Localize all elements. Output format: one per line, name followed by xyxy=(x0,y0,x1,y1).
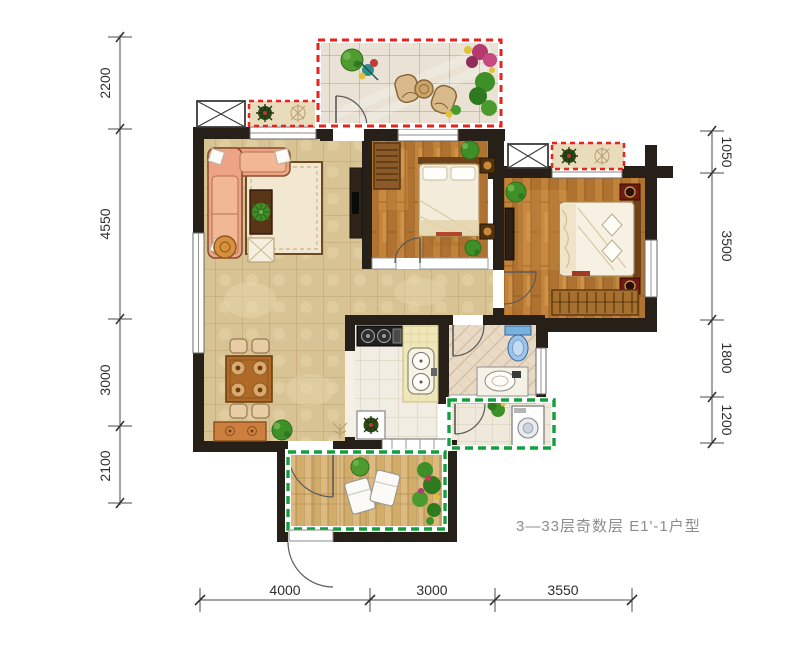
small-sink-icon xyxy=(393,329,401,343)
floor-plan-page: 2200 4550 3000 2100 1050 3500 1800 1200 … xyxy=(0,0,800,651)
tv-cabinet-master xyxy=(505,208,514,260)
wardrobe-bed1 xyxy=(374,143,400,189)
planter-box-right xyxy=(552,143,624,169)
partition-bed1-b xyxy=(420,258,488,269)
entry-door xyxy=(288,530,333,587)
floor-plan-canvas: 2200 4550 3000 2100 1050 3500 1800 1200 … xyxy=(0,0,800,651)
dim-label-left-2: 3000 xyxy=(97,364,113,395)
wardrobe-master xyxy=(552,290,638,315)
window-bath-right xyxy=(536,348,546,394)
nightstand xyxy=(620,184,640,200)
bed1-plant-icon xyxy=(465,240,481,256)
wall-master-right xyxy=(645,145,657,332)
vanity-sink xyxy=(477,367,528,396)
dim-label-bottom-0: 4000 xyxy=(269,582,300,598)
table-plant-icon xyxy=(251,202,271,222)
bed1-plant-icon xyxy=(461,141,479,159)
flue-shaft-right xyxy=(508,144,548,168)
tile-sheen xyxy=(286,374,334,406)
plant-icon xyxy=(256,104,274,122)
pillow xyxy=(423,167,447,180)
tv-cabinet-living xyxy=(350,168,362,238)
pillow xyxy=(451,167,475,180)
side-table-round xyxy=(214,236,236,258)
dim-label-left-0: 2200 xyxy=(97,67,113,98)
balcony-bush-icon xyxy=(351,458,369,476)
wall-kitchen-left-a xyxy=(345,325,355,351)
terrace-bush-icon xyxy=(341,49,363,71)
wall-left-lower xyxy=(193,353,204,452)
dining-plant-icon xyxy=(272,420,292,440)
window-living-left xyxy=(193,233,204,353)
wall-hall-b xyxy=(483,315,545,325)
dim-label-bottom-2: 3550 xyxy=(547,582,578,598)
master-bed xyxy=(560,200,641,278)
dimension-bottom: 4000 3000 3550 xyxy=(195,582,637,612)
dim-label-right-3: 1200 xyxy=(719,404,735,435)
counter xyxy=(403,326,438,402)
stove-unit xyxy=(357,326,403,346)
tile-sheen xyxy=(394,278,446,306)
wall-terrace-a xyxy=(320,129,333,141)
dim-label-left-3: 2100 xyxy=(97,450,113,481)
washer-panel xyxy=(514,408,526,413)
bed-trim xyxy=(572,271,590,276)
unit-type-caption: 3—33层奇数层 E1'-1户型 xyxy=(516,518,701,535)
bed-trim xyxy=(436,232,462,236)
wall-kitchen-bath xyxy=(438,325,449,404)
window-bed1-terrace xyxy=(398,129,458,141)
faucet-icon xyxy=(512,371,521,378)
wall-stub-right xyxy=(657,166,673,178)
partition-bed1-a xyxy=(372,258,396,269)
window-living-top xyxy=(250,127,316,139)
wall-hall-a xyxy=(345,315,453,325)
sideboard xyxy=(214,422,266,441)
wall-left-upper xyxy=(193,139,204,233)
dimension-left: 2200 4550 3000 2100 xyxy=(97,32,132,508)
dim-label-left-1: 4550 xyxy=(97,208,113,239)
bed1 xyxy=(418,157,480,236)
dim-label-right-2: 1800 xyxy=(719,342,735,373)
master-plant-icon xyxy=(506,182,526,202)
ottoman-sketch xyxy=(248,238,274,262)
planter-box-left xyxy=(249,101,318,126)
dimension-right: 1050 3500 1800 1200 xyxy=(700,126,735,448)
nightstand xyxy=(480,224,495,239)
washing-machine xyxy=(512,406,544,446)
nightstand xyxy=(480,158,495,173)
terrace-table xyxy=(415,80,433,98)
wall-master-bottom xyxy=(540,318,657,332)
dim-label-right-1: 3500 xyxy=(719,230,735,261)
window-master-right xyxy=(645,240,657,297)
dim-label-bottom-1: 3000 xyxy=(416,582,447,598)
plant-icon xyxy=(560,147,578,165)
faucet-icon xyxy=(431,368,437,376)
dining-table xyxy=(226,356,272,402)
wall-bottom-left xyxy=(193,441,288,452)
tv-icon xyxy=(352,192,359,214)
fridge-plant-box xyxy=(357,411,385,439)
dim-label-right-0: 1050 xyxy=(719,136,735,167)
wall-master-left-a xyxy=(493,166,504,270)
wall-living-bed1 xyxy=(362,129,372,269)
coffee-table xyxy=(250,190,272,234)
flue-shaft-left xyxy=(197,101,245,127)
tile-sheen xyxy=(224,282,276,318)
